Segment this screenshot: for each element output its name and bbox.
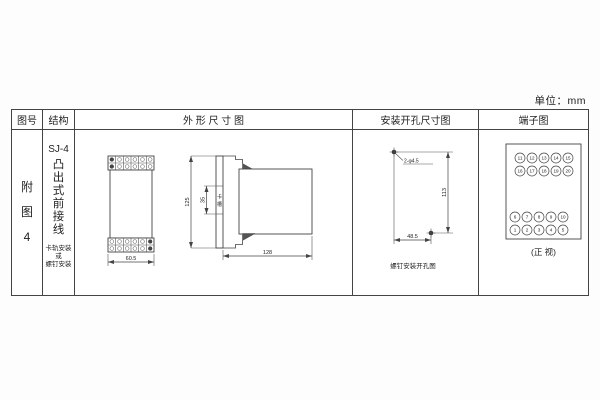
spec-table: 图号 结构 外 形 尺 寸 图 安装开孔尺寸图 端子图 附 图 4 SJ-4 凸…	[11, 109, 589, 296]
mounting-caption: 螺钉安装开孔图	[390, 261, 436, 270]
slot-label-char: 槽	[217, 201, 222, 208]
outline-drawing-cell: 60.5 125 35 卡 槽	[75, 130, 353, 295]
terminal-number: 3	[538, 228, 541, 233]
structure-char: 出	[53, 172, 65, 185]
mounting-note-line: 螺钉安装	[46, 261, 72, 269]
terminal-number: 4	[550, 228, 553, 233]
terminal-number: 18	[541, 169, 547, 174]
horizontal-dim-label: 48.5	[407, 234, 418, 240]
terminal-number: 12	[529, 156, 535, 161]
header-fig-no: 图号	[12, 110, 43, 130]
fig-char: 4	[24, 225, 31, 250]
structure-cell: SJ-4 凸 出 式 前 接 线 卡轨安装 或 螺钉安装	[43, 130, 75, 295]
terminal-number: 8	[538, 215, 541, 220]
mounting-note: 卡轨安装 或 螺钉安装	[46, 245, 72, 269]
fig-char: 附	[21, 175, 33, 200]
terminal-number: 20	[565, 169, 571, 174]
terminal-number: 13	[541, 156, 547, 161]
terminal-number: 15	[565, 156, 571, 161]
fig-number: 附 图 4	[12, 130, 42, 295]
vertical-dim-label: 113	[442, 188, 448, 197]
terminal-caption: (正 视)	[531, 247, 556, 257]
fig-char: 图	[21, 200, 33, 225]
front-width-dim-label: 60.5	[126, 256, 137, 262]
mounting-hole-drawing: 113 2-φ4.5 48.5 螺钉安装开孔图	[353, 130, 479, 295]
side-view: 125 35 卡 槽 128	[185, 156, 312, 260]
terminal-number: 17	[529, 169, 535, 174]
unit-label: 单位：mm	[535, 93, 587, 108]
terminal-number: 19	[553, 169, 559, 174]
height-dim-label: 125	[185, 197, 191, 206]
outline-drawing: 60.5 125 35 卡 槽	[75, 130, 353, 295]
header-outline-dims: 外 形 尺 寸 图	[75, 110, 353, 130]
depth-dim-label: 128	[263, 250, 272, 256]
header-structure: 结构	[43, 110, 75, 130]
terminal-number: 2	[526, 228, 529, 233]
header-mounting-holes: 安装开孔尺寸图	[353, 110, 479, 130]
terminal-number: 6	[514, 215, 517, 220]
fig-number-cell: 附 图 4	[12, 130, 43, 295]
mounting-hole-diagram: 113 2-φ4.5 48.5 螺钉安装开孔图	[390, 148, 454, 271]
header-terminal-diagram: 端子图	[479, 110, 588, 130]
structure-char: 式	[53, 185, 65, 198]
front-view: 60.5	[108, 156, 154, 266]
mounting-note-line: 或	[46, 253, 72, 261]
terminal-box: 11 12 13 14 15 16 17 18 19 20 6 7 8 9	[506, 144, 581, 257]
hole-count-label: 2-φ4.5	[404, 159, 419, 165]
terminal-number: 11	[518, 156, 523, 161]
structure-text: SJ-4 凸 出 式 前 接 线 卡轨安装 或 螺钉安装	[43, 130, 74, 295]
page: 单位：mm 图号 结构 外 形 尺 寸 图 安装开孔尺寸图 端子图 附 图 4 …	[0, 0, 600, 400]
structure-char: 前	[53, 198, 65, 211]
terminal-diagram: 11 12 13 14 15 16 17 18 19 20 6 7 8 9	[479, 130, 588, 295]
structure-char: 凸	[53, 159, 65, 172]
terminal-drawing-cell: 11 12 13 14 15 16 17 18 19 20 6 7 8 9	[479, 130, 588, 295]
terminal-number: 7	[526, 215, 529, 220]
mounting-note-line: 卡轨安装	[46, 245, 72, 253]
terminal-number: 10	[560, 215, 566, 220]
terminal-number: 9	[550, 215, 553, 220]
slot-dim-label: 35	[201, 197, 207, 203]
structure-char: 接	[53, 211, 65, 224]
mounting-drawing-cell: 113 2-φ4.5 48.5 螺钉安装开孔图	[353, 130, 479, 295]
model-label: SJ-4	[48, 144, 69, 156]
terminal-number: 14	[553, 156, 559, 161]
structure-char: 线	[53, 224, 65, 237]
slot-label-char: 卡	[217, 194, 222, 201]
terminal-number: 16	[517, 169, 523, 174]
terminal-number: 5	[562, 228, 565, 233]
terminal-number: 1	[514, 228, 517, 233]
